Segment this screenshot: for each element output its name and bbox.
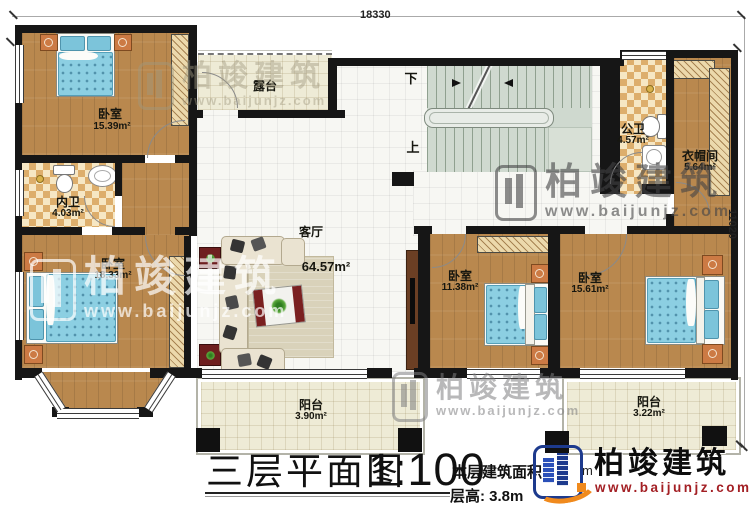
wall — [392, 172, 414, 186]
window — [15, 45, 24, 103]
room-area-balcony-right: 3.22m² — [633, 409, 665, 419]
wall — [189, 25, 197, 236]
dimension-tick — [9, 10, 18, 19]
watermark-url: www.baijunjz.com — [436, 402, 580, 421]
wall — [560, 226, 585, 234]
room-label-bedroom-bottom-left: 卧室 — [101, 258, 125, 270]
room-area-bedroom-bottom-left: 18.33m² — [94, 271, 131, 281]
blanket — [46, 274, 116, 342]
wall — [367, 368, 392, 378]
toilet-bowl — [56, 174, 73, 193]
tv — [410, 278, 415, 324]
end-table — [199, 247, 221, 269]
window — [15, 272, 24, 340]
dimension-top-value: 18330 — [360, 9, 391, 21]
wall — [560, 368, 580, 378]
dimension-line-right — [744, 18, 745, 450]
pillow — [534, 287, 547, 313]
vestibule-floor — [122, 163, 189, 236]
room-area-bedroom-middle: 11.38m² — [442, 283, 479, 293]
wall — [332, 58, 624, 66]
plant — [270, 297, 288, 315]
brand-website: www.baijunjz.com — [595, 481, 750, 495]
sink — [642, 145, 667, 170]
window — [202, 369, 367, 379]
wall — [666, 58, 674, 186]
room-area-balcony-center: 3.90m² — [295, 412, 327, 422]
wall — [112, 227, 145, 235]
pillow — [87, 36, 111, 51]
nightstand — [531, 264, 549, 283]
dimension-tick — [737, 10, 746, 19]
door-arc — [676, 182, 710, 214]
room-label-balcony-center: 阳台 — [299, 399, 323, 411]
stair-treads-upper — [427, 66, 592, 108]
stair-side-floor — [592, 62, 600, 172]
wall — [627, 226, 738, 234]
wall — [685, 368, 731, 378]
wall — [418, 230, 430, 378]
room-label-public-bath: 公卫 — [621, 123, 645, 135]
stair-treads-lower — [427, 127, 548, 172]
closet — [709, 68, 730, 196]
stair-handrail — [424, 108, 554, 128]
dimension-tick — [6, 37, 15, 46]
sofa-pillow — [237, 353, 252, 367]
room-area-bedroom-top-left: 15.39m² — [93, 122, 130, 132]
title-underline — [205, 492, 450, 494]
wall — [430, 368, 467, 378]
wall — [191, 368, 202, 378]
stair-arrow-left — [452, 79, 461, 87]
wardrobe — [171, 34, 189, 126]
wall — [115, 163, 122, 196]
room-area-inner-bath: 4.03m² — [52, 209, 84, 219]
nightstand — [702, 255, 723, 275]
nightstand — [702, 344, 723, 364]
wall — [548, 234, 560, 378]
room-label-bedroom-middle: 卧室 — [448, 270, 472, 282]
stair-label-up: 上 — [406, 141, 419, 154]
door-arc — [610, 152, 642, 184]
dimension-right-value: 11020 — [726, 202, 738, 246]
window — [622, 51, 666, 60]
floor-drain — [36, 175, 44, 183]
bay-window-front — [57, 408, 139, 419]
nightstand — [24, 345, 43, 364]
room-label-cloakroom: 衣帽间 — [682, 150, 718, 162]
wall — [15, 227, 82, 235]
room-label-bedroom-top-left: 卧室 — [98, 108, 122, 120]
room-label-inner-bath: 内卫 — [56, 196, 80, 208]
brand-logo — [531, 443, 593, 499]
nightstand — [40, 34, 58, 51]
wall — [600, 184, 612, 194]
room-label-balcony-right: 阳台 — [637, 396, 661, 408]
floor-height-label: 层高: 3.8m — [450, 485, 523, 506]
nightstand — [24, 252, 43, 271]
room-area-bedroom-right: 15.61m² — [571, 285, 608, 295]
nightstand — [114, 34, 132, 51]
door-arc — [202, 72, 238, 108]
room-label-living: 客厅 — [299, 226, 323, 238]
wall — [414, 226, 432, 234]
window — [467, 369, 540, 379]
stair-landing — [548, 127, 592, 172]
stair-label-down: 下 — [404, 72, 417, 85]
pillar — [196, 428, 220, 452]
stair-arrow-right — [504, 79, 513, 87]
closet — [477, 236, 550, 253]
window — [580, 369, 685, 379]
wall — [15, 25, 197, 33]
wall — [197, 110, 203, 118]
pillow — [534, 314, 547, 340]
terrace-open-edge — [198, 53, 332, 55]
wall — [666, 214, 674, 234]
sink — [88, 165, 117, 187]
pillow — [704, 280, 719, 309]
nightstand — [531, 346, 549, 365]
room-area-public-bath: 4.57m² — [617, 136, 649, 146]
sofa-pillow — [223, 265, 237, 280]
window — [15, 170, 24, 216]
title-underline-2 — [205, 496, 450, 497]
wall — [328, 58, 337, 118]
wall — [175, 227, 189, 235]
door-arc — [147, 120, 185, 158]
room-area-living: 64.57m² — [302, 260, 350, 273]
brand-logo-square — [577, 483, 586, 492]
wall — [466, 226, 560, 234]
door-arc — [585, 234, 627, 276]
end-table — [199, 344, 221, 366]
pillow — [60, 36, 85, 51]
pillow — [29, 276, 44, 307]
room-label-bedroom-right: 卧室 — [578, 272, 602, 284]
door-arc — [84, 196, 115, 227]
sofa-pillow — [225, 295, 239, 310]
pillow — [29, 309, 44, 340]
door-arc — [432, 234, 466, 268]
door-arc — [145, 236, 185, 276]
pillow — [704, 310, 719, 339]
brand-name: 柏竣建筑 — [594, 449, 730, 479]
blanket — [486, 285, 527, 344]
pillar — [702, 426, 727, 446]
blanket — [647, 278, 696, 343]
blanket — [58, 52, 113, 96]
room-area-cloakroom: 5.64m² — [684, 163, 716, 173]
floor-drain — [646, 85, 654, 93]
room-label-terrace: 露台 — [253, 80, 277, 92]
coffee-table — [252, 284, 306, 327]
terrace-roof-line — [198, 50, 332, 51]
wall — [184, 236, 191, 372]
wall — [15, 155, 145, 163]
